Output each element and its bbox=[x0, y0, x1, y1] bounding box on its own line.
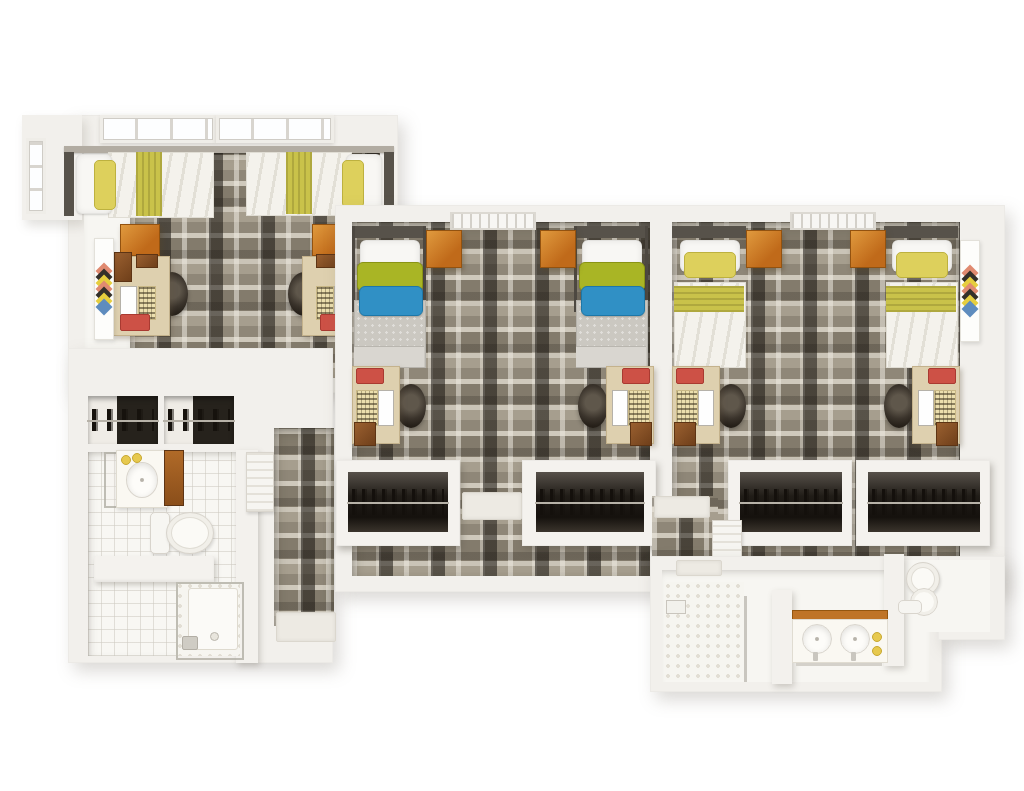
shower-floor bbox=[664, 582, 744, 680]
door-mat bbox=[462, 492, 522, 520]
closet-interior bbox=[348, 472, 448, 532]
laptop-keyboard bbox=[628, 390, 650, 426]
headboard bbox=[884, 226, 958, 238]
laptop-keyboard bbox=[934, 390, 956, 426]
laptop-keyboard bbox=[676, 390, 698, 426]
sink bbox=[126, 462, 158, 498]
sink bbox=[840, 624, 870, 654]
blanket bbox=[286, 152, 312, 214]
under-desk-cabinet bbox=[630, 422, 652, 446]
accent-cushion bbox=[896, 252, 948, 278]
ceiling-vent-icon bbox=[450, 212, 536, 230]
door-mat bbox=[676, 560, 722, 576]
blue-pillow bbox=[359, 286, 423, 316]
bed bbox=[64, 152, 212, 216]
laptop-screen bbox=[918, 390, 934, 426]
red-seat-cushion bbox=[676, 368, 704, 384]
faucet bbox=[813, 652, 818, 661]
accent-cushion bbox=[94, 160, 116, 210]
window-icon bbox=[26, 138, 46, 214]
under-desk-cabinet bbox=[936, 422, 958, 446]
closet bbox=[88, 396, 158, 444]
red-seat-cushion bbox=[928, 368, 956, 384]
clothes-hangers bbox=[168, 409, 230, 431]
blanket bbox=[674, 286, 744, 312]
side-table bbox=[746, 230, 782, 268]
clothes-hangers bbox=[872, 489, 976, 515]
door-mat bbox=[654, 496, 710, 518]
red-seat-cushion bbox=[622, 368, 650, 384]
desk-station bbox=[572, 366, 652, 446]
closet bbox=[856, 460, 990, 546]
vanity-cabinet bbox=[164, 450, 184, 506]
desk-chair bbox=[884, 384, 914, 428]
soap-dispenser bbox=[872, 632, 882, 642]
clothes-hangers bbox=[744, 489, 838, 515]
closet bbox=[522, 460, 656, 546]
faucet bbox=[851, 652, 856, 661]
soap-dispenser bbox=[121, 455, 131, 465]
double-vanity bbox=[792, 610, 886, 668]
under-desk-cabinet bbox=[674, 422, 696, 446]
soap-dispenser bbox=[132, 453, 142, 463]
accent-cushion bbox=[342, 160, 364, 208]
red-seat-cushion bbox=[356, 368, 384, 384]
shower-fixture bbox=[182, 636, 198, 650]
headboard bbox=[64, 152, 74, 216]
desk-hutch bbox=[114, 252, 132, 282]
desk-station bbox=[672, 366, 752, 446]
wall-heater-unit bbox=[246, 452, 274, 512]
desk-station bbox=[112, 252, 188, 336]
under-desk-cabinet bbox=[354, 422, 376, 446]
bed bbox=[574, 226, 648, 366]
desk-chair bbox=[716, 384, 746, 428]
partition-wall bbox=[772, 590, 792, 684]
laptop-keyboard bbox=[356, 390, 378, 426]
closet-interior bbox=[740, 472, 842, 532]
towel-bar bbox=[796, 663, 882, 666]
desk-station bbox=[878, 366, 958, 446]
laptop-screen bbox=[698, 390, 714, 426]
duvet-fold bbox=[576, 346, 646, 367]
wall-art bbox=[960, 240, 980, 342]
bed bbox=[672, 226, 746, 366]
window-icon bbox=[100, 115, 216, 143]
clothes-hangers bbox=[540, 489, 640, 515]
desk-chair bbox=[578, 384, 608, 428]
side-table bbox=[540, 230, 576, 268]
red-seat-cushion bbox=[120, 314, 150, 331]
clothes-hangers bbox=[92, 409, 154, 431]
shower-fixture bbox=[666, 600, 686, 614]
ceiling-vent-icon bbox=[790, 212, 876, 230]
blanket bbox=[886, 286, 956, 312]
entry-door-mat bbox=[276, 612, 336, 642]
soap-dispenser bbox=[872, 646, 882, 656]
hallway-carpet bbox=[274, 428, 334, 626]
closet bbox=[728, 460, 852, 546]
closet bbox=[164, 396, 234, 444]
bench-counter bbox=[94, 556, 214, 582]
closet-interior bbox=[536, 472, 644, 532]
clothes-hangers bbox=[352, 489, 444, 515]
headboard bbox=[672, 226, 746, 238]
side-table bbox=[850, 230, 886, 268]
duvet-fold bbox=[354, 346, 424, 367]
closet-interior bbox=[868, 472, 980, 532]
wall-art bbox=[94, 238, 114, 340]
desk-tray bbox=[136, 254, 158, 268]
blanket bbox=[136, 152, 162, 216]
blue-pillow bbox=[581, 286, 645, 316]
floor-plan bbox=[0, 0, 1024, 791]
toilet-paper-roll bbox=[898, 600, 922, 614]
toilet bbox=[166, 512, 214, 554]
bed bbox=[352, 226, 426, 366]
shower-glass bbox=[744, 596, 747, 682]
bed bbox=[884, 226, 958, 366]
side-table bbox=[426, 230, 462, 268]
accent-cushion bbox=[684, 252, 736, 278]
laptop-screen bbox=[378, 390, 394, 426]
desk-chair bbox=[396, 384, 426, 428]
window-icon bbox=[216, 115, 334, 143]
desk-station bbox=[352, 366, 432, 446]
laptop-screen bbox=[612, 390, 628, 426]
sink bbox=[802, 624, 832, 654]
closet bbox=[336, 460, 460, 546]
